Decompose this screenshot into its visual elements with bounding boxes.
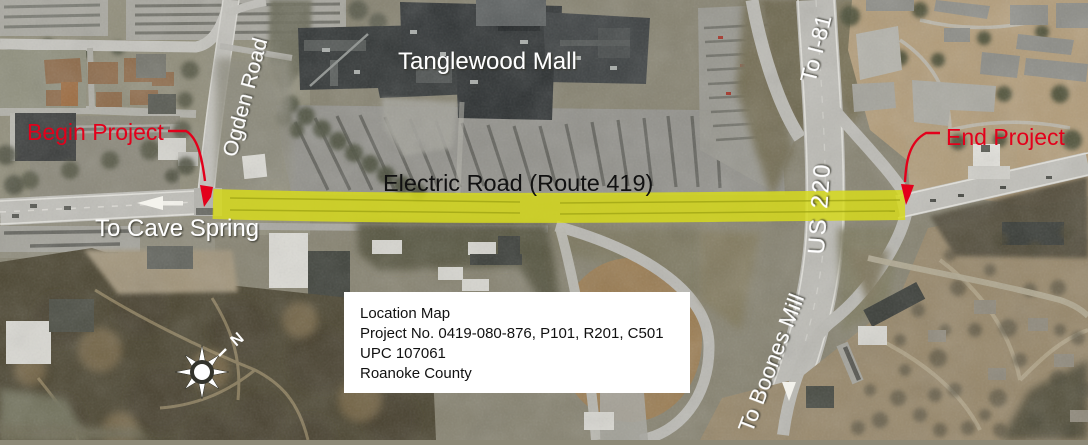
svg-text:Roanoke County: Roanoke County xyxy=(360,365,472,382)
svg-text:Begin Project: Begin Project xyxy=(27,119,164,145)
svg-text:To Cave Spring: To Cave Spring xyxy=(95,215,259,242)
svg-text:Tanglewood Mall: Tanglewood Mall xyxy=(398,48,577,75)
svg-text:End Project: End Project xyxy=(946,124,1066,150)
svg-text:Location Map: Location Map xyxy=(360,305,450,322)
svg-text:Project No. 0419-080-876, P101: Project No. 0419-080-876, P101, R201, C5… xyxy=(360,325,664,342)
svg-text:Electric Road (Route 419): Electric Road (Route 419) xyxy=(383,170,653,196)
svg-text:UPC 107061: UPC 107061 xyxy=(360,345,446,362)
